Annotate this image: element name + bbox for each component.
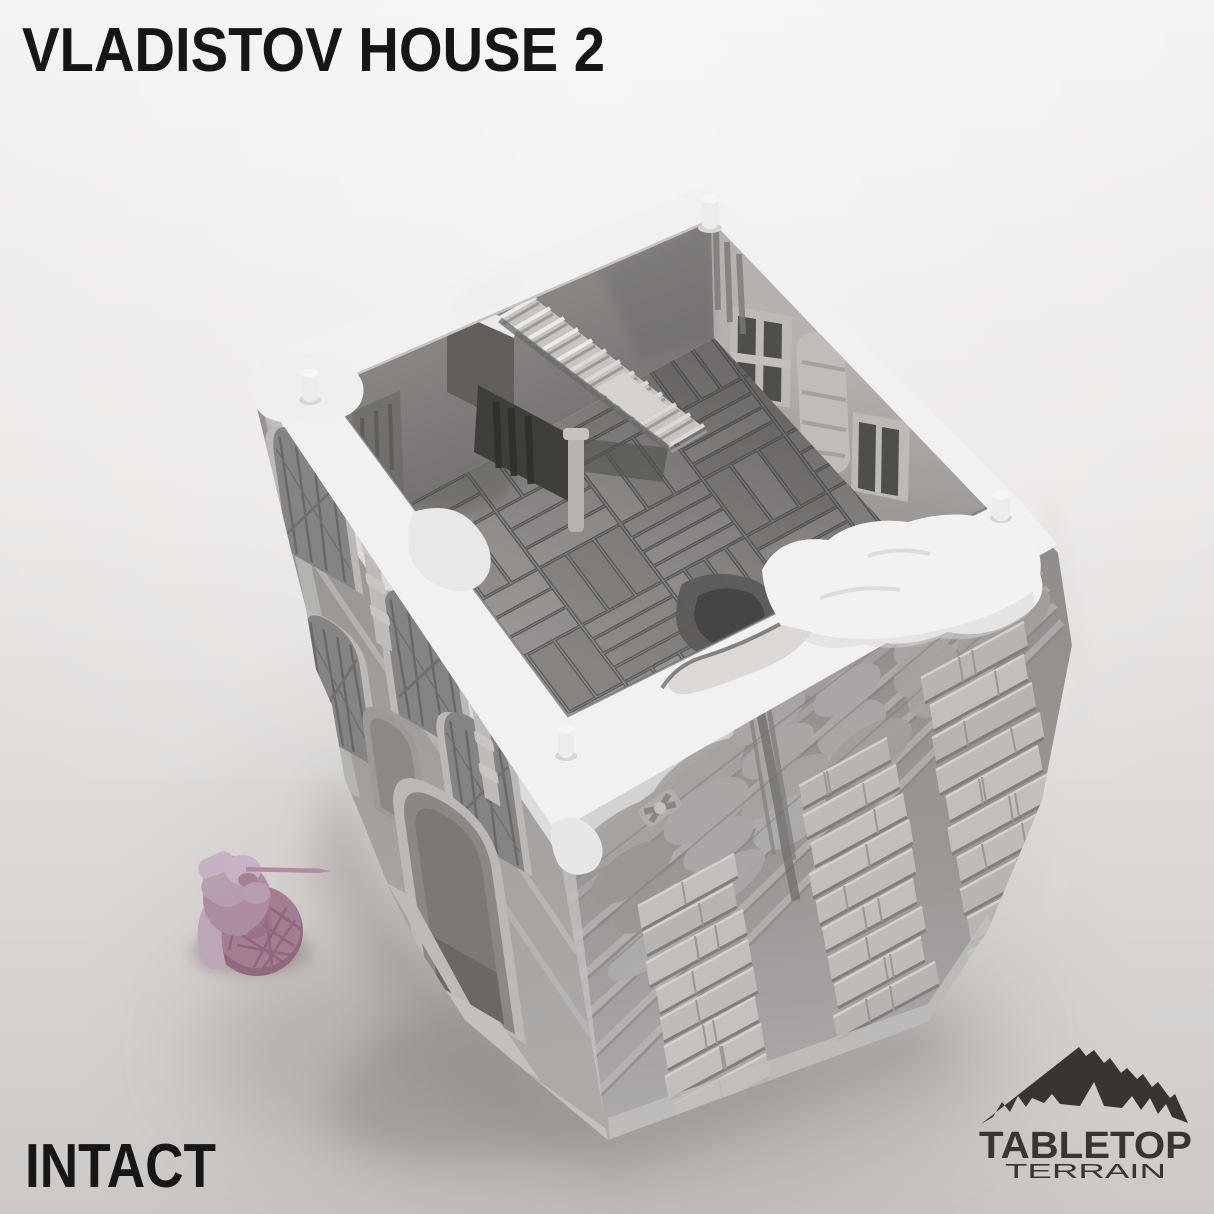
svg-text:VLADISTOV HOUSE 2: VLADISTOV HOUSE 2 xyxy=(22,16,605,85)
svg-text:INTACT: INTACT xyxy=(25,1132,216,1201)
svg-text:TERRAIN: TERRAIN xyxy=(1005,1161,1166,1183)
